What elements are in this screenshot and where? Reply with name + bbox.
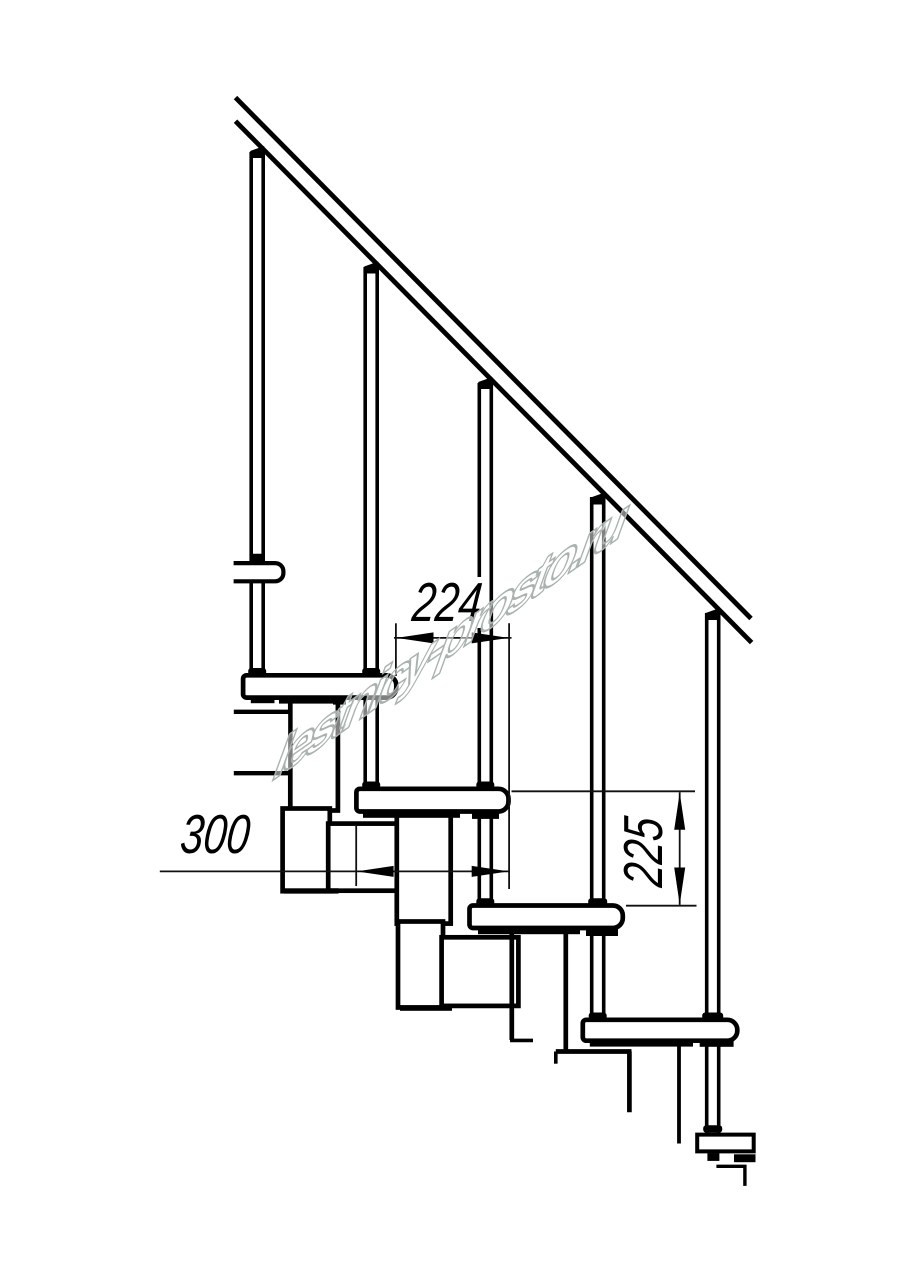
- svg-text:300: 300: [178, 803, 254, 865]
- svg-text:225: 225: [612, 814, 674, 890]
